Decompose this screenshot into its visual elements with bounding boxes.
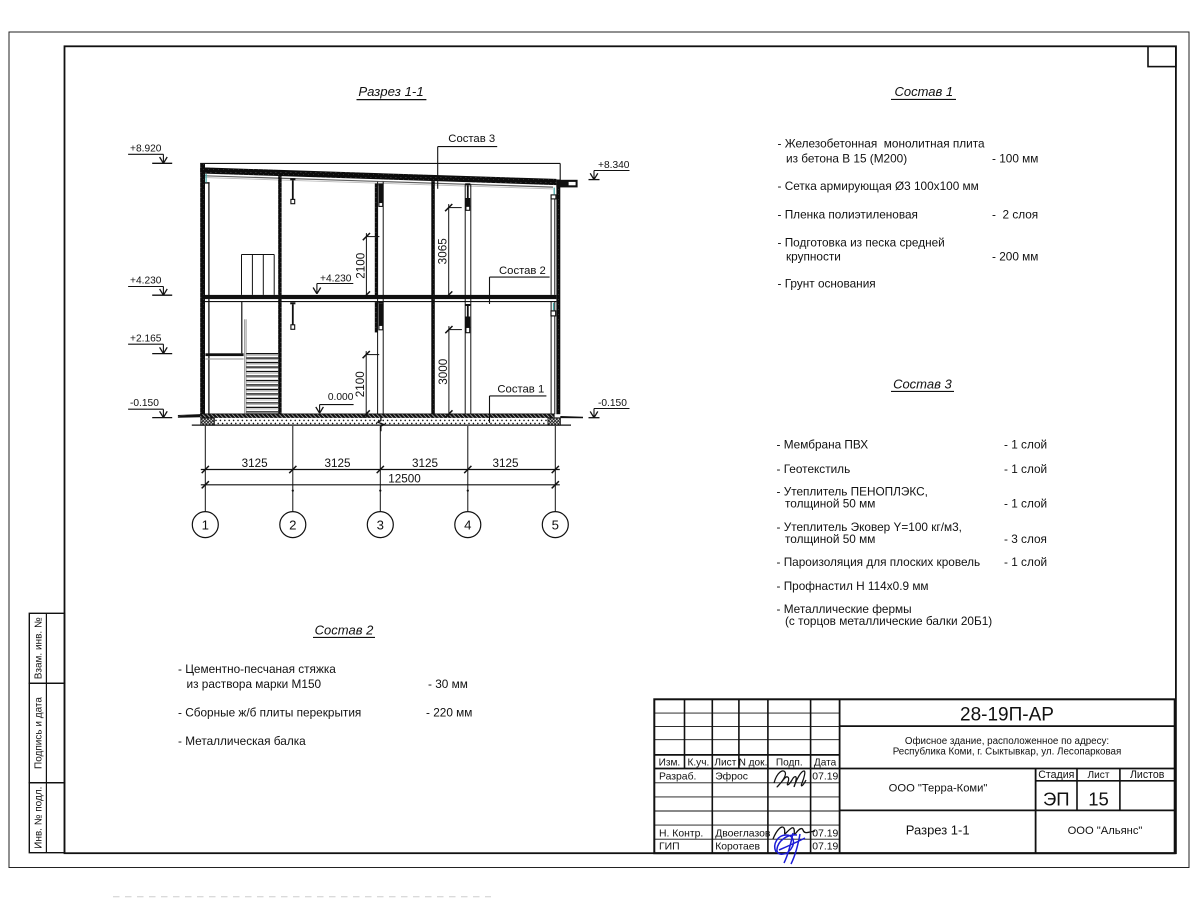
svg-text:- 30 мм: - 30 мм bbox=[428, 677, 468, 691]
svg-text:- 1 слой: - 1 слой bbox=[1004, 496, 1047, 510]
svg-text:- Подготовка из песка средней: - Подготовка из песка средней bbox=[778, 235, 945, 249]
svg-text:Двоеглазов: Двоеглазов bbox=[715, 828, 771, 839]
svg-text:ЭП: ЭП bbox=[1043, 789, 1070, 810]
svg-text:Лист: Лист bbox=[714, 757, 736, 768]
svg-text:Инв. № подл.: Инв. № подл. bbox=[34, 787, 45, 849]
svg-text:- Металлическая балка: - Металлическая балка bbox=[178, 734, 306, 748]
svg-text:-0.150: -0.150 bbox=[598, 398, 627, 409]
svg-text:Республика Коми, г. Сыктывкар,: Республика Коми, г. Сыктывкар, ул. Лесоп… bbox=[893, 747, 1122, 758]
svg-text:- Профнастил Н 114х0.9 мм: - Профнастил Н 114х0.9 мм bbox=[777, 579, 929, 593]
svg-text:2100: 2100 bbox=[354, 371, 367, 398]
svg-text:3000: 3000 bbox=[437, 358, 450, 385]
svg-text:Подпись и дата: Подпись и дата bbox=[34, 697, 45, 769]
svg-text:- 1 слой: - 1 слой bbox=[1004, 462, 1047, 476]
svg-text:Изм.: Изм. bbox=[659, 757, 681, 768]
svg-text:Н. Контр.: Н. Контр. bbox=[659, 828, 703, 839]
svg-text:Дата: Дата bbox=[814, 757, 837, 768]
svg-text:07.19: 07.19 bbox=[812, 828, 838, 839]
svg-text:07.19: 07.19 bbox=[812, 772, 838, 783]
svg-text:Состав 3: Состав 3 bbox=[893, 376, 952, 391]
svg-text:2: 2 bbox=[289, 517, 296, 532]
svg-text:07.19: 07.19 bbox=[812, 842, 838, 853]
svg-text:+8.340: +8.340 bbox=[598, 160, 630, 171]
svg-text:Состав 2: Состав 2 bbox=[315, 622, 374, 637]
svg-text:Разрез 1-1: Разрез 1-1 bbox=[906, 822, 970, 837]
svg-text:+4.230: +4.230 bbox=[320, 274, 352, 285]
svg-text:+4.230: +4.230 bbox=[130, 276, 162, 287]
svg-text:- Геотекстиль: - Геотекстиль bbox=[777, 462, 851, 476]
svg-text:Взам. инв. №: Взам. инв. № bbox=[34, 617, 45, 679]
svg-text:- 1 слой: - 1 слой bbox=[1004, 555, 1047, 569]
svg-text:(с торцов металлические балки: (с торцов металлические балки 20Б1) bbox=[785, 614, 992, 628]
svg-text:15: 15 bbox=[1088, 789, 1109, 810]
svg-text:крупности: крупности bbox=[786, 249, 841, 263]
svg-text:-0.150: -0.150 bbox=[130, 398, 159, 409]
svg-text:Стадия: Стадия bbox=[1038, 769, 1074, 781]
svg-text:Состав 3: Состав 3 bbox=[448, 133, 495, 145]
svg-text:Подп.: Подп. bbox=[776, 757, 803, 768]
svg-text:толщиной 50 мм: толщиной 50 мм bbox=[785, 532, 875, 546]
svg-text:Состав 2: Состав 2 bbox=[499, 265, 546, 277]
svg-text:из раствора марки М150: из раствора марки М150 bbox=[187, 677, 322, 691]
svg-text:Состав 1: Состав 1 bbox=[894, 84, 953, 99]
svg-text:Коротаев: Коротаев bbox=[715, 842, 760, 853]
svg-text:4: 4 bbox=[464, 517, 471, 532]
svg-text:28-19П-АР: 28-19П-АР bbox=[960, 705, 1054, 726]
svg-text:5: 5 bbox=[552, 517, 559, 532]
svg-text:3065: 3065 bbox=[437, 238, 450, 265]
svg-text:- Железобетонная монолитная п: - Железобетонная монолитная плита bbox=[778, 137, 986, 151]
svg-text:- 3 слоя: - 3 слоя bbox=[1004, 532, 1047, 546]
svg-text:Разрез 1-1: Разрез 1-1 bbox=[358, 84, 423, 99]
svg-text:- 2 слоя: - 2 слоя bbox=[992, 208, 1038, 222]
svg-text:- Сборные ж/б плиты перекрытия: - Сборные ж/б плиты перекрытия bbox=[178, 706, 361, 720]
svg-text:Состав 1: Состав 1 bbox=[497, 384, 544, 396]
svg-text:0.000: 0.000 bbox=[328, 392, 354, 403]
svg-text:К.уч.: К.уч. bbox=[688, 757, 710, 768]
svg-text:Офисное здание, расположенное: Офисное здание, расположенное по адресу: bbox=[905, 736, 1109, 747]
svg-text:1: 1 bbox=[202, 517, 209, 532]
svg-text:ГИП: ГИП bbox=[659, 842, 680, 853]
svg-text:+8.920: +8.920 bbox=[130, 144, 162, 155]
svg-text:12500: 12500 bbox=[388, 472, 421, 485]
svg-text:- 220 мм: - 220 мм bbox=[426, 706, 472, 720]
svg-text:- 100 мм: - 100 мм bbox=[992, 152, 1038, 166]
svg-text:3125: 3125 bbox=[492, 457, 519, 470]
svg-text:- 200 мм: - 200 мм bbox=[992, 249, 1038, 263]
svg-text:N док.: N док. bbox=[739, 757, 768, 768]
svg-text:Разраб.: Разраб. bbox=[659, 771, 696, 783]
svg-text:Эфрос: Эфрос bbox=[715, 771, 748, 783]
svg-text:ООО "Альянс": ООО "Альянс" bbox=[1068, 825, 1143, 837]
svg-text:- Грунт основания: - Грунт основания bbox=[778, 277, 876, 291]
svg-text:- Цементно-песчаная стяжка: - Цементно-песчаная стяжка bbox=[178, 662, 336, 676]
svg-text:3125: 3125 bbox=[242, 457, 269, 470]
svg-text:- Мембрана ПВХ: - Мембрана ПВХ bbox=[777, 437, 869, 451]
svg-text:3: 3 bbox=[377, 517, 384, 532]
svg-text:Лист: Лист bbox=[1088, 770, 1110, 781]
svg-text:3125: 3125 bbox=[324, 457, 351, 470]
svg-text:+2.165: +2.165 bbox=[130, 334, 162, 345]
svg-text:- Пленка полиэтиленовая: - Пленка полиэтиленовая bbox=[778, 208, 918, 222]
svg-text:ООО "Терра-Коми": ООО "Терра-Коми" bbox=[889, 783, 988, 795]
svg-text:2100: 2100 bbox=[354, 252, 367, 279]
svg-text:- Сетка армирующая Ø3 100х100: - Сетка армирующая Ø3 100х100 мм bbox=[778, 179, 979, 193]
svg-text:- Пароизоляция для плоских кро: - Пароизоляция для плоских кровель bbox=[777, 555, 981, 569]
svg-text:- 1 слой: - 1 слой bbox=[1004, 437, 1047, 451]
svg-text:3125: 3125 bbox=[412, 457, 439, 470]
svg-text:из бетона В 15 (М200): из бетона В 15 (М200) bbox=[786, 152, 907, 166]
svg-text:толщиной 50 мм: толщиной 50 мм bbox=[785, 496, 875, 510]
svg-text:Листов: Листов bbox=[1130, 769, 1165, 781]
